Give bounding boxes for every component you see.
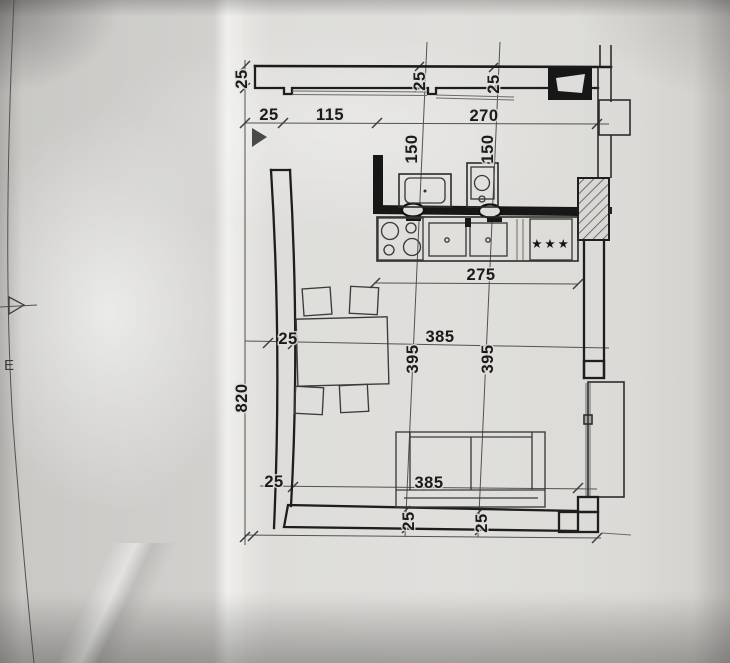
washbasin-drain (424, 190, 427, 193)
sink-drain (486, 238, 490, 242)
balcony-projection (588, 382, 624, 497)
dim-label-wall-top-left: 25 (233, 69, 251, 88)
sink-drain (445, 238, 449, 242)
dim-label-wall-top-mid: 25 (411, 71, 429, 90)
adjacent-sheet-axis (0, 0, 37, 663)
dim-label-150-left: 150 (403, 134, 421, 163)
dim-label-top-115: 115 (316, 106, 344, 124)
kitchen-partition-vertical (373, 155, 383, 213)
dim-line-vertical-a (405, 42, 427, 537)
sink-divider (465, 218, 471, 227)
dim-tick (573, 483, 583, 493)
dim-tick (263, 338, 273, 348)
window-glazing (436, 98, 514, 100)
freezer-star-rating: ★★★ (531, 236, 571, 251)
dim-line-bottom (245, 535, 601, 538)
axis-label: E (4, 357, 14, 374)
burner (384, 245, 394, 255)
window-glazing (436, 95, 514, 97)
bathroom-fixtures (399, 163, 498, 207)
top-wall-outer-edge (255, 66, 611, 67)
burner (406, 223, 416, 233)
sofa (396, 432, 545, 507)
chair (339, 384, 368, 412)
dim-label-150-right: 150 (479, 134, 497, 163)
dim-label-395-right: 395 (479, 344, 497, 373)
kitchen-counter: ★★★ (377, 217, 578, 261)
water-heater-dial (475, 176, 490, 191)
dim-label-top-25: 25 (259, 106, 278, 124)
north-pointer-triangle (252, 128, 267, 147)
dim-label-wall-bottom-a: 25 (400, 511, 418, 530)
chair (349, 286, 378, 314)
dim-line-top (245, 123, 609, 124)
floor-plan-drawing: ★★★ 25 25 115 270 25 (0, 0, 730, 663)
dining-table (296, 317, 389, 386)
exterior-ledge (599, 100, 630, 135)
axis-line (8, 0, 34, 663)
window-glazing (292, 91, 427, 92)
floor-plan-photo: ★★★ 25 25 115 270 25 (0, 0, 730, 663)
chair (302, 287, 332, 316)
right-wall-end-cap (584, 361, 604, 378)
window-glazing (292, 95, 427, 96)
dim-label-mid-25: 25 (278, 330, 297, 348)
dim-label-wall-top-right: 25 (485, 74, 503, 93)
sink-bowl-right (470, 223, 507, 256)
pipe-sleeve (402, 204, 424, 217)
ventilation-shaft (578, 178, 609, 240)
dim-label-wall-bottom-b: 25 (473, 513, 491, 532)
dim-label-bottom-25: 25 (264, 473, 283, 491)
dim-label-820: 820 (233, 383, 251, 412)
stray-line (602, 533, 631, 535)
dim-label-275: 275 (466, 266, 495, 284)
dimension-lines (240, 42, 631, 545)
corner-step-upper (578, 497, 598, 512)
dim-label-top-270: 270 (469, 107, 498, 125)
dim-label-sofa-385: 385 (414, 474, 443, 492)
axis-tick-line (0, 305, 37, 307)
dim-label-mid-385: 385 (425, 328, 454, 346)
shaft-mark (608, 207, 612, 214)
dim-label-395-left: 395 (404, 344, 422, 373)
burner (382, 223, 399, 240)
bottom-wall (284, 505, 578, 531)
sink-bowl-left (429, 223, 466, 256)
chair (294, 386, 323, 414)
